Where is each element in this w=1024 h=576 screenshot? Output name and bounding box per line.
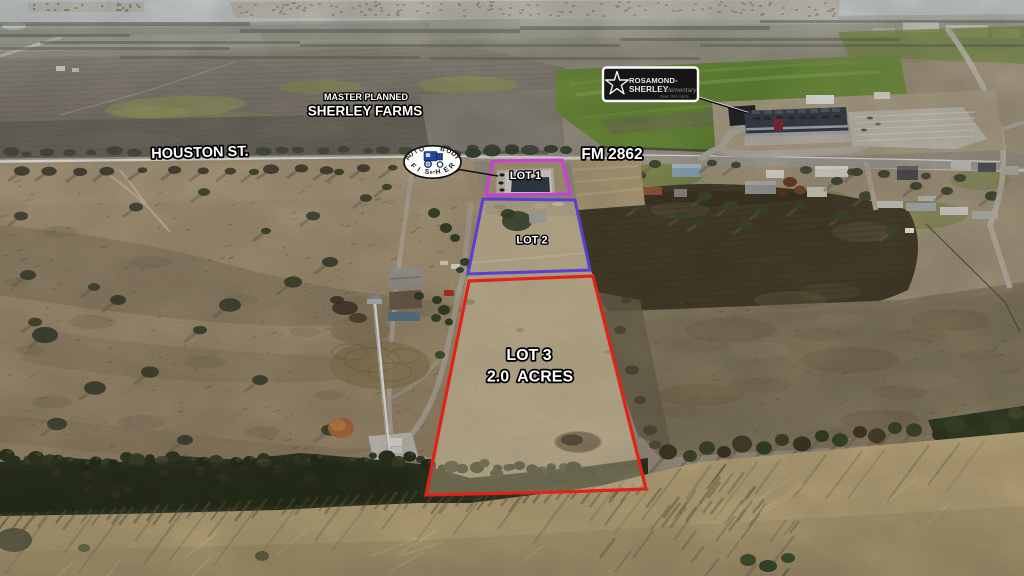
svg-text:SHERLEY: SHERLEY (629, 85, 669, 94)
svg-text:HOUSTON ST.: HOUSTON ST. (151, 144, 249, 163)
svg-text:LOT 1: LOT 1 (510, 170, 541, 182)
svg-text:LOT 2: LOT 2 (516, 235, 547, 247)
svg-text:MASTER PLANNED: MASTER PLANNED (324, 92, 409, 102)
svg-text:LOT 3: LOT 3 (506, 347, 551, 364)
svg-text:BY: BY (430, 170, 436, 175)
svg-text:Elementary: Elementary (664, 87, 697, 94)
svg-text:ROSAMOND-: ROSAMOND- (629, 76, 678, 85)
svg-text:2.0 ACRES: 2.0 ACRES (487, 369, 574, 386)
svg-text:SHERLEY FARMS: SHERLEY FARMS (308, 104, 423, 119)
svg-text:FM 2862: FM 2862 (581, 146, 642, 163)
svg-text:dream. think. inspire.: dream. think. inspire. (660, 95, 690, 99)
